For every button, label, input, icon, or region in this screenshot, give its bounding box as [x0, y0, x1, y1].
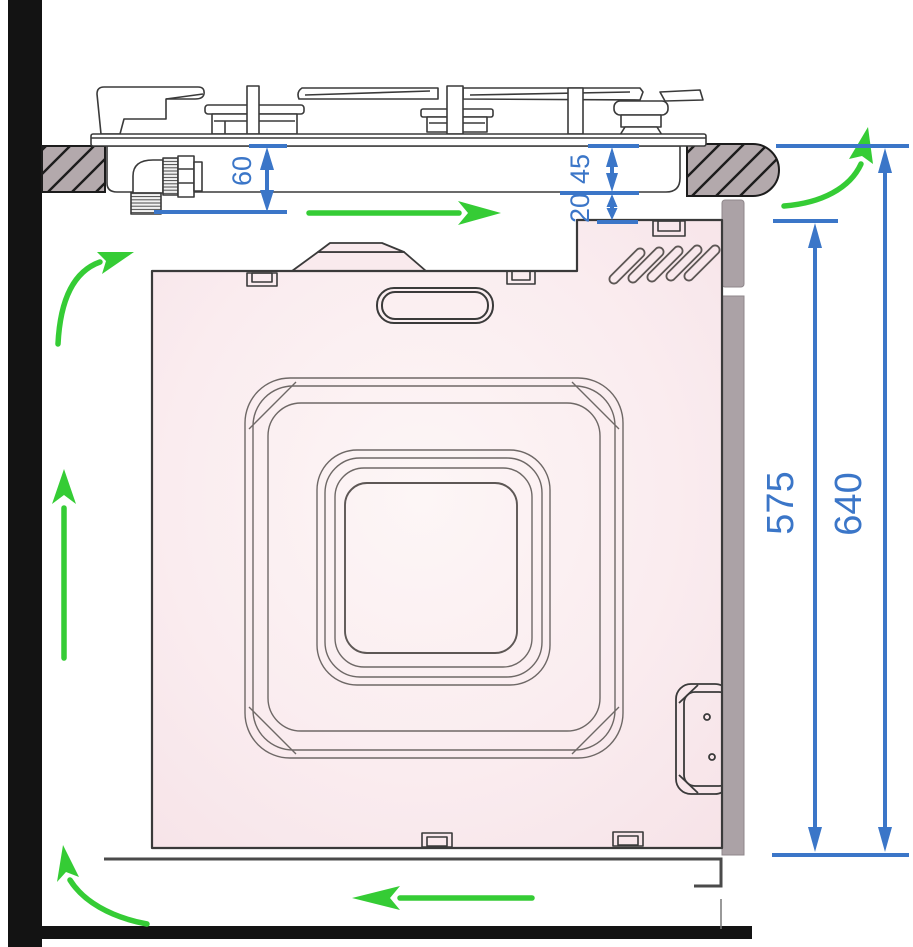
hob-burners — [97, 86, 703, 135]
worktop-left-section — [42, 146, 105, 192]
pan-support-end — [660, 90, 703, 101]
grate-post — [568, 88, 583, 134]
dim-label-640: 640 — [828, 472, 870, 535]
gas-elbow-icon — [133, 160, 163, 193]
wall-left — [8, 0, 42, 947]
dim-label-20: 20 — [565, 193, 595, 223]
diagram-canvas: 60 45 20 575 640 — [0, 0, 913, 947]
oven — [152, 220, 730, 848]
airflow-right-under-hob-icon — [309, 201, 501, 225]
cabinet-shelf-line — [104, 859, 721, 886]
dim-label-45: 45 — [565, 154, 595, 184]
cabinet-side-panel-upper — [722, 200, 744, 287]
pan-support-left — [97, 87, 204, 134]
grate-post — [447, 86, 463, 134]
igniter-cap — [614, 101, 668, 115]
airflow-curve-up-left-icon — [58, 252, 134, 344]
cabinet-side-panel-lower — [722, 296, 744, 855]
dim-ventilation-gap: 20 — [565, 193, 638, 223]
dim-label-60: 60 — [227, 156, 257, 186]
airflow-up-left-icon — [52, 469, 76, 658]
igniter-body — [621, 115, 661, 127]
floor-bottom — [8, 926, 752, 939]
dim-label-575: 575 — [760, 471, 802, 534]
airflow-curve-bottom-left-icon — [57, 845, 147, 924]
gas-connection-elbow — [131, 156, 202, 214]
oven-top-bump — [292, 243, 426, 271]
gas-thread — [163, 158, 178, 195]
dim-oven-niche-height: 575 — [760, 223, 822, 852]
airflow-curve-up-right-icon — [784, 127, 873, 206]
oven-body — [152, 220, 722, 848]
grate-post — [247, 86, 259, 134]
worktop-right-section — [687, 144, 779, 196]
installation-diagram: 60 45 20 575 640 — [0, 0, 913, 947]
dim-overall-height: 640 — [828, 148, 892, 852]
airflow-left-under-oven-icon — [352, 886, 532, 910]
gas-nut — [178, 156, 194, 197]
gas-stub — [194, 162, 202, 191]
